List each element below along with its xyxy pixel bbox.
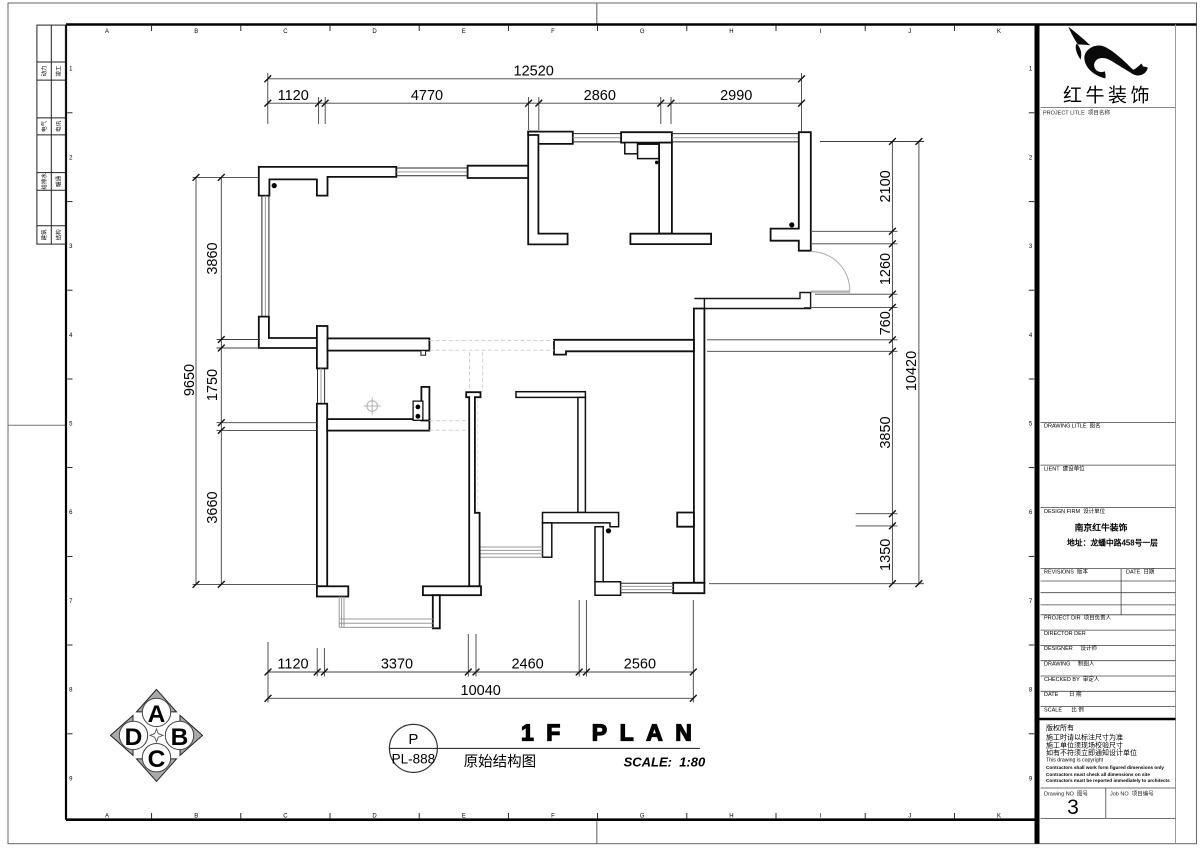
svg-text:E: E [462, 29, 466, 35]
svg-text:1120: 1120 [277, 656, 308, 672]
svg-text:施工单位须现场校验尺寸: 施工单位须现场校验尺寸 [1046, 741, 1123, 750]
svg-text:DATE 日期: DATE 日期 [1126, 569, 1155, 576]
svg-text:Contractors must be reported i: Contractors must be reported immediately… [1046, 778, 1170, 783]
svg-text:J: J [908, 814, 911, 820]
svg-text:D: D [125, 724, 143, 751]
svg-text:REVISIONS 版本: REVISIONS 版本 [1044, 568, 1089, 576]
svg-text:1120: 1120 [278, 88, 309, 104]
svg-text:2100: 2100 [878, 170, 894, 202]
svg-text:原始结构图: 原始结构图 [464, 754, 536, 771]
svg-text:1350: 1350 [878, 539, 894, 571]
svg-text:PL-888: PL-888 [392, 752, 436, 767]
svg-text:竣工: 竣工 [55, 65, 63, 77]
svg-text:版权所有: 版权所有 [1046, 723, 1074, 732]
svg-text:暖通: 暖通 [55, 175, 63, 187]
svg-text:This drawing is copyright: This drawing is copyright [1046, 758, 1104, 764]
svg-text:760: 760 [878, 311, 894, 335]
svg-text:施工时请以标注尺寸为准: 施工时请以标注尺寸为准 [1046, 732, 1123, 741]
svg-text:如有不符须立即通知设计单位: 如有不符须立即通知设计单位 [1046, 748, 1137, 757]
svg-text:南京红牛装饰: 南京红牛装饰 [1075, 522, 1128, 533]
svg-text:4770: 4770 [411, 88, 443, 104]
svg-text:DATE 日 期: DATE 日 期 [1044, 691, 1082, 698]
svg-text:G: G [640, 29, 645, 35]
svg-text:DRAWING 制图人: DRAWING 制图人 [1044, 660, 1095, 668]
svg-text:电讯: 电讯 [54, 120, 62, 132]
svg-text:地址：龙蟠中路458号一层: 地址：龙蟠中路458号一层 [1067, 538, 1158, 548]
svg-text:1F PLAN: 1F PLAN [521, 720, 704, 746]
svg-text:E: E [462, 814, 466, 820]
svg-text:2990: 2990 [720, 88, 752, 104]
svg-text:F: F [551, 814, 555, 820]
svg-text:F: F [551, 29, 555, 35]
svg-text:Contractors must check all dim: Contractors must check all dimensions on… [1046, 772, 1150, 777]
svg-text:电气: 电气 [40, 120, 48, 132]
svg-text:J: J [908, 29, 911, 35]
svg-text:红牛装饰: 红牛装饰 [1063, 85, 1153, 107]
svg-text:K: K [997, 814, 1001, 820]
svg-text:H: H [729, 814, 733, 820]
svg-text:3660: 3660 [205, 491, 221, 523]
svg-text:给排水: 给排水 [40, 173, 48, 190]
svg-text:1260: 1260 [878, 253, 894, 285]
svg-text:B: B [194, 29, 198, 35]
svg-text:3370: 3370 [381, 656, 413, 672]
svg-text:G: G [640, 814, 645, 820]
svg-text:D: D [372, 29, 377, 35]
svg-text:C: C [283, 814, 288, 820]
svg-text:A: A [105, 29, 109, 35]
svg-text:DIRECTOR DER: DIRECTOR DER [1044, 631, 1086, 637]
svg-text:9650: 9650 [182, 364, 198, 396]
svg-text:2560: 2560 [624, 656, 656, 672]
svg-text:A: A [148, 701, 166, 728]
svg-text:结构: 结构 [55, 229, 63, 241]
svg-text:D: D [372, 814, 377, 820]
svg-text:SCALE: 1:80: SCALE: 1:80 [624, 755, 706, 770]
svg-text:3860: 3860 [205, 242, 221, 274]
svg-text:12520: 12520 [514, 64, 554, 80]
svg-text:Contractors shall work form fi: Contractors shall work form figured dime… [1046, 765, 1164, 770]
svg-text:A: A [105, 814, 109, 820]
svg-text:CHECKED BY 审定人: CHECKED BY 审定人 [1044, 675, 1100, 683]
svg-text:C: C [283, 29, 288, 35]
svg-text:3: 3 [1067, 796, 1079, 819]
svg-text:10420: 10420 [904, 351, 920, 391]
svg-text:B: B [171, 724, 189, 751]
svg-text:DESIGN FIRM 设计单位: DESIGN FIRM 设计单位 [1044, 507, 1106, 515]
svg-text:LIENT 建设单位: LIENT 建设单位 [1044, 464, 1085, 472]
svg-text:P: P [408, 731, 418, 748]
svg-text:Job NO 项目编号: Job NO 项目编号 [1110, 790, 1154, 798]
svg-text:建筑: 建筑 [40, 229, 48, 241]
svg-text:DESIGNER 设计师: DESIGNER 设计师 [1044, 644, 1097, 652]
svg-text:2460: 2460 [511, 656, 543, 672]
svg-text:C: C [148, 746, 166, 773]
svg-text:动力: 动力 [40, 65, 48, 76]
svg-text:DRAWING LITLE 图名: DRAWING LITLE 图名 [1044, 422, 1101, 430]
svg-text:1750: 1750 [205, 369, 221, 401]
svg-text:3850: 3850 [878, 416, 894, 448]
svg-text:PROJECT DIR 项目负责人: PROJECT DIR 项目负责人 [1044, 614, 1112, 622]
svg-text:10040: 10040 [461, 683, 501, 699]
svg-text:H: H [729, 29, 733, 35]
svg-text:SCALE 比 例: SCALE 比 例 [1044, 705, 1084, 713]
svg-text:B: B [194, 814, 198, 820]
svg-text:2860: 2860 [584, 88, 616, 104]
svg-text:K: K [997, 29, 1001, 35]
svg-text:PROJECT LITLE 项目名称: PROJECT LITLE 项目名称 [1043, 109, 1110, 117]
